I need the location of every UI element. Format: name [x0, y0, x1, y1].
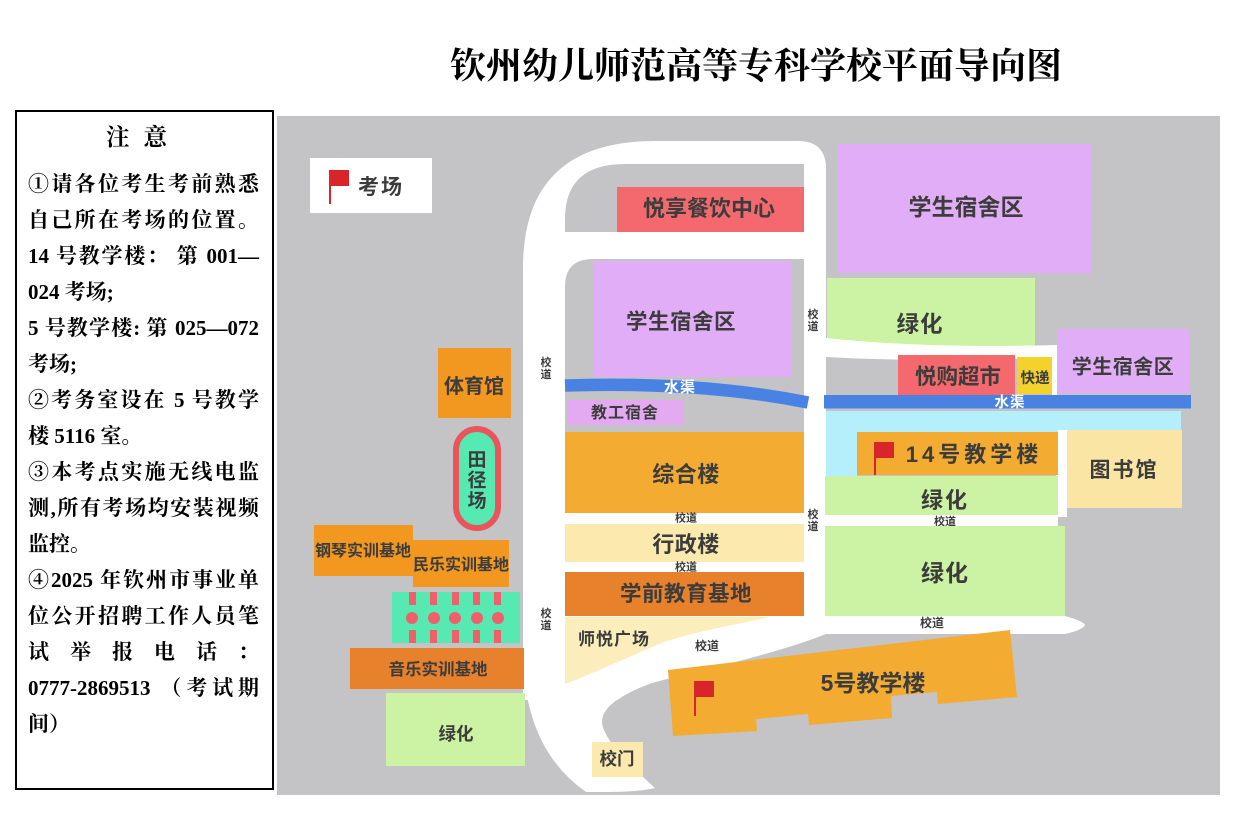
svg-text:校道: 校道	[920, 615, 944, 630]
svg-text:水渠: 水渠	[664, 378, 696, 396]
svg-text:教工宿舍: 教工宿舍	[591, 403, 659, 422]
svg-text:绿化: 绿化	[921, 560, 969, 586]
svg-text:音乐实训基地: 音乐实训基地	[389, 659, 489, 679]
svg-text:水渠: 水渠	[995, 393, 1026, 411]
svg-text:绿化: 绿化	[921, 488, 969, 513]
svg-text:图书馆: 图书馆	[1090, 459, 1159, 482]
svg-text:校道: 校道	[541, 606, 552, 632]
svg-text:体育馆: 体育馆	[444, 374, 504, 398]
svg-text:校道: 校道	[808, 507, 819, 533]
svg-text:绿化: 绿化	[439, 724, 474, 744]
svg-text:田径场: 田径场	[467, 450, 486, 512]
svg-text:悦购超市: 悦购超市	[915, 364, 1001, 389]
svg-text:学生宿舍区: 学生宿舍区	[626, 309, 736, 334]
svg-text:校道: 校道	[695, 638, 719, 653]
svg-text:学前教育基地: 学前教育基地	[620, 581, 752, 606]
svg-text:学生宿舍区: 学生宿舍区	[909, 194, 1024, 220]
svg-text:学生宿舍区: 学生宿舍区	[1072, 355, 1175, 379]
svg-text:校道: 校道	[934, 514, 956, 528]
svg-text:14号教学楼: 14号教学楼	[906, 442, 1042, 467]
svg-text:校道: 校道	[808, 307, 819, 333]
svg-text:5号教学楼: 5号教学楼	[821, 670, 926, 696]
svg-text:校道: 校道	[675, 560, 697, 574]
svg-text:悦享餐饮中心: 悦享餐饮中心	[643, 196, 775, 221]
svg-text:考场: 考场	[358, 176, 404, 199]
svg-text:行政楼: 行政楼	[652, 532, 720, 557]
svg-text:快递: 快递	[1021, 369, 1050, 387]
svg-text:校道: 校道	[541, 355, 552, 381]
svg-text:钢琴实训基地: 钢琴实训基地	[315, 541, 411, 560]
svg-text:师悦广场: 师悦广场	[578, 630, 650, 649]
svg-text:民乐实训基地: 民乐实训基地	[413, 555, 509, 574]
svg-text:绿化: 绿化	[896, 312, 943, 337]
svg-text:综合楼: 综合楼	[652, 462, 720, 487]
svg-text:校道: 校道	[675, 511, 697, 525]
svg-text:校门: 校门	[600, 749, 635, 769]
